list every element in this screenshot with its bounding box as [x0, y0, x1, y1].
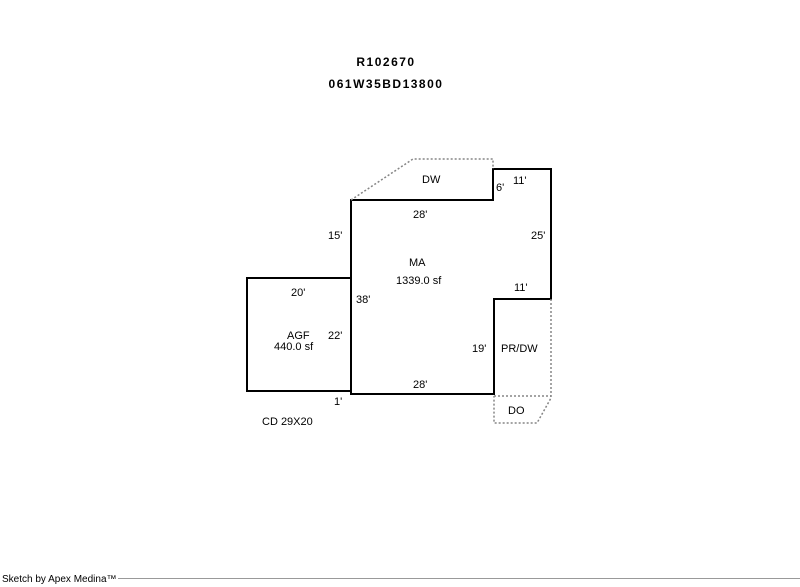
dim-left-38: 38'	[356, 294, 370, 306]
dim-pr-19: 19'	[472, 343, 486, 355]
dim-agf-top-20: 20'	[291, 287, 305, 299]
sketch-page: R102670 061W35BD13800 DW MA 1339.0 sf AG…	[0, 0, 800, 587]
sketch-credit: Sketch by Apex Medina™	[2, 574, 117, 585]
dim-top-11: 11'	[513, 175, 527, 187]
ma-label: MA	[409, 257, 426, 269]
ma-area-label: 1339.0 sf	[396, 275, 442, 287]
dim-right-25: 25'	[531, 230, 545, 242]
do-label: DO	[508, 405, 525, 417]
dim-bottom-28: 28'	[413, 379, 427, 391]
dim-notch-6: 6'	[496, 182, 504, 194]
prdw-label: PR/DW	[501, 343, 538, 355]
building-sketch: DW MA 1339.0 sf AGF 440.0 sf PR/DW DO CD…	[0, 0, 800, 587]
dim-agf-right-22: 22'	[328, 330, 342, 342]
dw-label: DW	[422, 174, 441, 186]
dim-right-11: 11'	[514, 282, 528, 294]
agf-area-label: 440.0 sf	[274, 341, 314, 353]
dim-jog-1: 1'	[334, 396, 342, 408]
dim-top-28: 28'	[413, 209, 427, 221]
dim-left-15: 15'	[328, 230, 342, 242]
cd-label: CD 29X20	[262, 416, 313, 428]
